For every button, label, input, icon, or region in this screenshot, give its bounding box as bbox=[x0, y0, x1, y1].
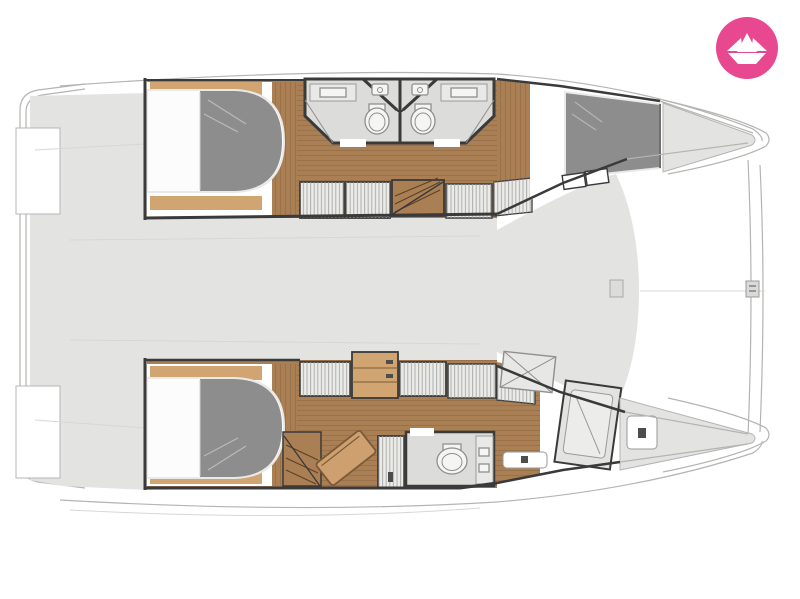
double-bed bbox=[147, 378, 284, 478]
companionway-stairs bbox=[392, 178, 444, 216]
bow-step-notch-bottom bbox=[16, 386, 60, 478]
bathroom-door-right bbox=[434, 139, 460, 147]
transom-line-inner bbox=[760, 165, 763, 432]
transom-line-outer bbox=[748, 160, 751, 436]
small-sink-right bbox=[412, 84, 428, 95]
upper-hull bbox=[145, 78, 755, 220]
sink-basin-left bbox=[320, 88, 346, 97]
toilet-left bbox=[365, 104, 389, 134]
small-sink-left bbox=[372, 84, 388, 95]
double-bed bbox=[147, 90, 284, 192]
bow-step-notch-top bbox=[16, 128, 60, 214]
drawer-pull bbox=[386, 360, 393, 364]
lower-companionway-stairs bbox=[283, 432, 321, 486]
foot-shelf bbox=[150, 196, 262, 210]
lower-forward-cabin bbox=[147, 364, 297, 486]
mattress bbox=[200, 379, 282, 477]
mattress bbox=[200, 91, 282, 191]
cabin-floor bbox=[530, 84, 565, 200]
floor-plan-drawing bbox=[0, 0, 800, 599]
lower-bathroom bbox=[406, 428, 494, 486]
centerline-marker-box bbox=[746, 281, 759, 297]
upper-forward-cabin bbox=[147, 82, 297, 218]
sink-basin bbox=[479, 464, 489, 472]
upper-bathrooms bbox=[305, 79, 494, 147]
dresser bbox=[352, 352, 398, 398]
drawer-pull bbox=[386, 374, 393, 378]
bathroom-door-left bbox=[340, 139, 366, 147]
sink-basin bbox=[479, 448, 489, 456]
locker-latch bbox=[638, 428, 646, 438]
sink-basin-right bbox=[451, 88, 477, 97]
boat-floor-plan bbox=[0, 0, 800, 599]
hull-shadow-line bbox=[70, 508, 480, 516]
paper-boat-icon bbox=[716, 17, 778, 79]
hanging-locker bbox=[378, 436, 404, 488]
toilet-right bbox=[411, 104, 435, 134]
bathroom-door bbox=[410, 428, 434, 436]
brand-logo[interactable] bbox=[716, 17, 778, 79]
upper-wardrobes-and-stairs bbox=[300, 178, 532, 218]
vanity bbox=[476, 436, 493, 484]
locker-latch bbox=[521, 456, 528, 463]
lower-hull bbox=[145, 351, 755, 490]
cockpit-notch bbox=[610, 280, 623, 297]
locker-handle bbox=[388, 472, 393, 482]
